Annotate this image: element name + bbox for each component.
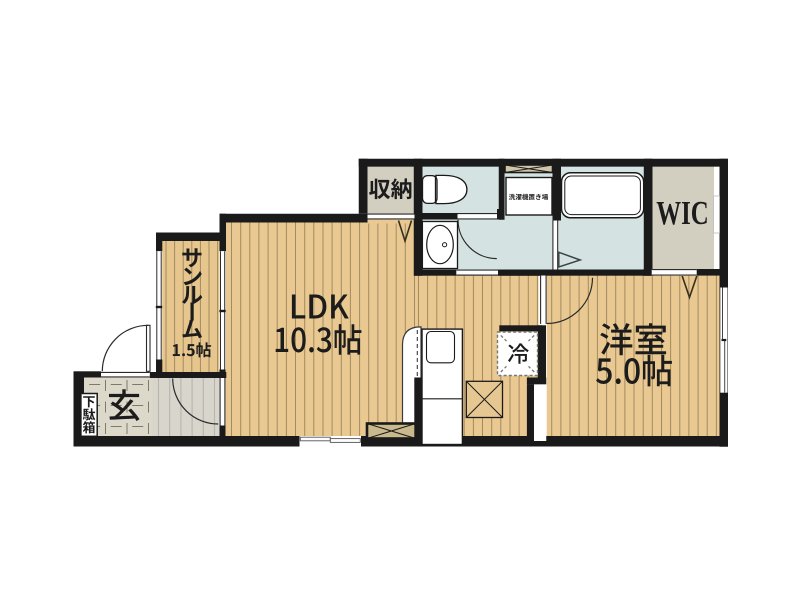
svg-text:WIC: WIC: [656, 195, 708, 232]
